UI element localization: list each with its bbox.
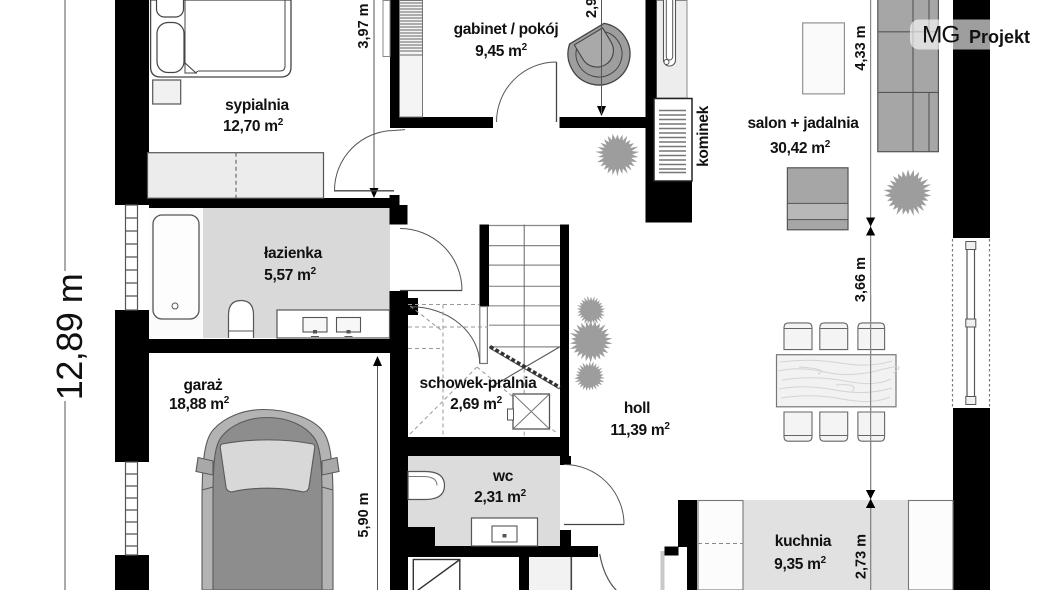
svg-text:gabinet / pokój: gabinet / pokój — [454, 21, 559, 38]
svg-text:2,69 m2: 2,69 m2 — [450, 395, 502, 413]
svg-text:11,39 m2: 11,39 m2 — [610, 421, 670, 439]
svg-text:30,42 m2: 30,42 m2 — [770, 139, 831, 157]
svg-text:kominek: kominek — [695, 105, 712, 166]
svg-text:garaż: garaż — [184, 377, 224, 394]
svg-text:12,89 m: 12,89 m — [49, 274, 90, 401]
svg-text:salon + jadalnia: salon + jadalnia — [747, 115, 859, 132]
svg-text:5,90 m: 5,90 m — [356, 492, 372, 537]
svg-text:9,35 m2: 9,35 m2 — [774, 555, 826, 573]
svg-text:2,73 m: 2,73 m — [854, 534, 870, 579]
svg-text:5,57 m2: 5,57 m2 — [264, 266, 316, 284]
svg-text:18,88 m2: 18,88 m2 — [169, 395, 230, 413]
svg-text:łazienka: łazienka — [264, 245, 323, 262]
svg-text:3,66 m: 3,66 m — [853, 257, 869, 302]
svg-text:schowek-pralnia: schowek-pralnia — [420, 375, 538, 392]
svg-text:2,95 m: 2,95 m — [584, 0, 600, 18]
svg-text:wc: wc — [492, 468, 514, 485]
svg-text:12,70 m2: 12,70 m2 — [223, 117, 284, 135]
svg-text:9,45 m2: 9,45 m2 — [475, 42, 527, 60]
svg-text:kuchnia: kuchnia — [775, 533, 832, 550]
svg-text:2,31 m2: 2,31 m2 — [474, 488, 526, 506]
svg-text:MG: MG — [922, 22, 959, 49]
svg-text:Projekt: Projekt — [969, 27, 1030, 47]
svg-text:4,33 m: 4,33 m — [853, 25, 869, 70]
svg-text:sypialnia: sypialnia — [225, 97, 289, 114]
svg-text:3,97 m: 3,97 m — [356, 3, 372, 48]
svg-text:holl: holl — [624, 400, 650, 417]
